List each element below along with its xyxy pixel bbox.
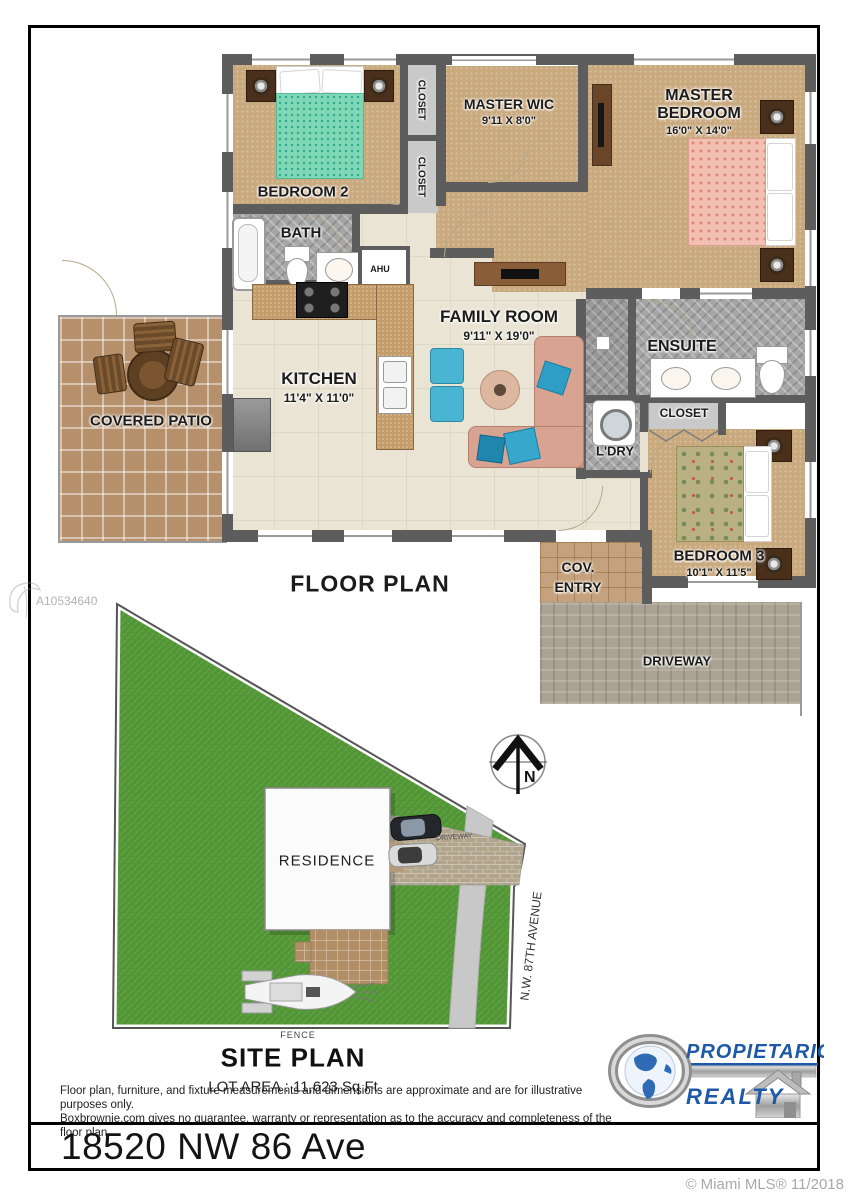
- pillow: [476, 434, 505, 463]
- patio-door: [222, 330, 233, 394]
- pillow: [279, 69, 321, 96]
- wall: [222, 204, 408, 214]
- blanket: [676, 446, 744, 542]
- property-address: 18520 NW 86 Ave: [31, 1126, 366, 1168]
- window: [344, 530, 392, 542]
- residence-label: RESIDENCE: [279, 853, 376, 870]
- bathtub: [232, 217, 266, 291]
- room-dims-kitchen: 11'4" X 11'0": [284, 391, 354, 405]
- room-label-kitchen: KITCHEN: [281, 369, 357, 389]
- basin: [711, 367, 741, 390]
- wall: [628, 299, 636, 395]
- pillow: [321, 69, 362, 95]
- address-bar: 18520 NW 86 Ave: [28, 1122, 820, 1171]
- window: [222, 452, 233, 514]
- rear-patio-step: [295, 942, 311, 962]
- tub-basin: [238, 224, 258, 282]
- armchair: [430, 348, 464, 384]
- window: [805, 330, 816, 376]
- nightstand: [760, 100, 794, 134]
- basin: [325, 258, 353, 282]
- room-label-bedroom2: BEDROOM 2: [258, 184, 349, 201]
- window: [700, 288, 752, 299]
- bed: [276, 66, 364, 178]
- window: [452, 530, 504, 542]
- room-label-closet-b: CLOSET: [416, 157, 427, 198]
- room-dims-master: 16'0" X 14'0": [666, 125, 732, 137]
- logo-name-line1: PROPIETARIO: [686, 1041, 824, 1063]
- washer: [592, 400, 636, 446]
- window: [805, 462, 816, 518]
- room-label-master-2: BEDROOM: [657, 105, 741, 123]
- room-label-ensuite: ENSUITE: [647, 338, 716, 356]
- lamp: [768, 256, 786, 274]
- basin: [383, 387, 407, 409]
- basin: [661, 367, 691, 390]
- site-plan-title: SITE PLAN: [221, 1043, 366, 1074]
- mls-credit-watermark: © Miami MLS® 11/2018: [685, 1176, 844, 1193]
- stove: [296, 282, 348, 318]
- window: [805, 92, 816, 144]
- room-dims-master-wic: 9'11 X 8'0": [482, 115, 536, 127]
- room-label-master-wic: MASTER WIC: [464, 96, 554, 112]
- lamp: [252, 77, 270, 95]
- car-dark: [390, 814, 442, 841]
- bed: [688, 138, 796, 246]
- room-label-bedroom3: BEDROOM 3: [674, 548, 765, 565]
- window: [252, 54, 310, 65]
- door-gap: [640, 432, 648, 472]
- room-label-patio: COVERED PATIO: [90, 413, 212, 430]
- pillow: [767, 193, 793, 241]
- pillow: [745, 495, 769, 537]
- room-label-closet-c: CLOSET: [660, 406, 709, 420]
- compass-rose: N: [489, 735, 547, 794]
- dresser: [592, 84, 612, 166]
- compass-north-label: N: [524, 769, 536, 786]
- wall: [606, 530, 652, 542]
- window: [222, 94, 233, 152]
- room-label-ahu: AHU: [370, 264, 390, 274]
- window: [344, 54, 396, 65]
- lamp: [768, 108, 786, 126]
- tv: [501, 269, 539, 279]
- wall: [578, 54, 588, 192]
- site-plan-graphic: N: [95, 590, 565, 1045]
- armchair: [430, 386, 464, 422]
- tv-console: [474, 262, 566, 286]
- door-gap: [642, 288, 680, 299]
- tv: [598, 103, 604, 147]
- fridge: [233, 398, 271, 452]
- listing-id-watermark: A10534640: [36, 594, 97, 608]
- disclaimer-line-1: Floor plan, furniture, and fixture measu…: [60, 1084, 620, 1112]
- room-label-master-1: MASTER: [665, 87, 733, 105]
- wall: [400, 58, 408, 208]
- room-label-closet-a: CLOSET: [416, 80, 427, 121]
- floor-plan-sheet: BEDROOM 2 CLOSET CLOSET MASTER WIC 9'11 …: [0, 0, 848, 1200]
- basin: [383, 361, 407, 383]
- nightstand: [364, 70, 394, 102]
- blanket: [276, 93, 364, 179]
- room-dims-family: 9'11" X 19'0": [463, 329, 534, 343]
- blanket: [688, 138, 766, 246]
- pillow: [745, 451, 769, 493]
- pillow: [767, 143, 793, 191]
- side-table: [480, 370, 520, 410]
- room-label-cov-entry-1: COV.: [562, 559, 595, 575]
- bed: [676, 446, 772, 542]
- bifold-door: [648, 429, 720, 443]
- room-dims-bedroom3: 10'1" X 11'5": [686, 567, 751, 579]
- window: [805, 230, 816, 286]
- nightstand: [760, 248, 794, 282]
- fence-label: FENCE: [280, 1030, 316, 1040]
- wall: [400, 135, 438, 141]
- room-label-bath: BATH: [281, 225, 322, 242]
- room-label-family: FAMILY ROOM: [440, 307, 558, 327]
- lamp: [370, 77, 388, 95]
- room-label-driveway: DRIVEWAY: [643, 654, 711, 669]
- lamp: [765, 555, 783, 573]
- window: [452, 56, 536, 65]
- front-door-gap: [556, 530, 606, 542]
- wall: [642, 542, 652, 604]
- nightstand: [246, 70, 276, 102]
- pillow: [503, 427, 541, 465]
- patio-chair: [93, 353, 128, 395]
- room-label-laundry: L'DRY: [596, 444, 634, 459]
- washer-door: [600, 409, 632, 441]
- brokerage-logo: PROPIETARIO REALTY: [598, 1024, 824, 1118]
- shower-head: [596, 336, 610, 350]
- property-line: [800, 602, 802, 716]
- logo-underline: [684, 1063, 818, 1066]
- logo-name-line2: REALTY: [686, 1084, 785, 1109]
- car-silver: [388, 843, 437, 867]
- decor: [494, 384, 506, 396]
- double-vanity: [650, 358, 756, 398]
- wall: [436, 182, 588, 192]
- window: [258, 530, 312, 542]
- kitchen-sink: [378, 356, 412, 414]
- window: [634, 54, 734, 65]
